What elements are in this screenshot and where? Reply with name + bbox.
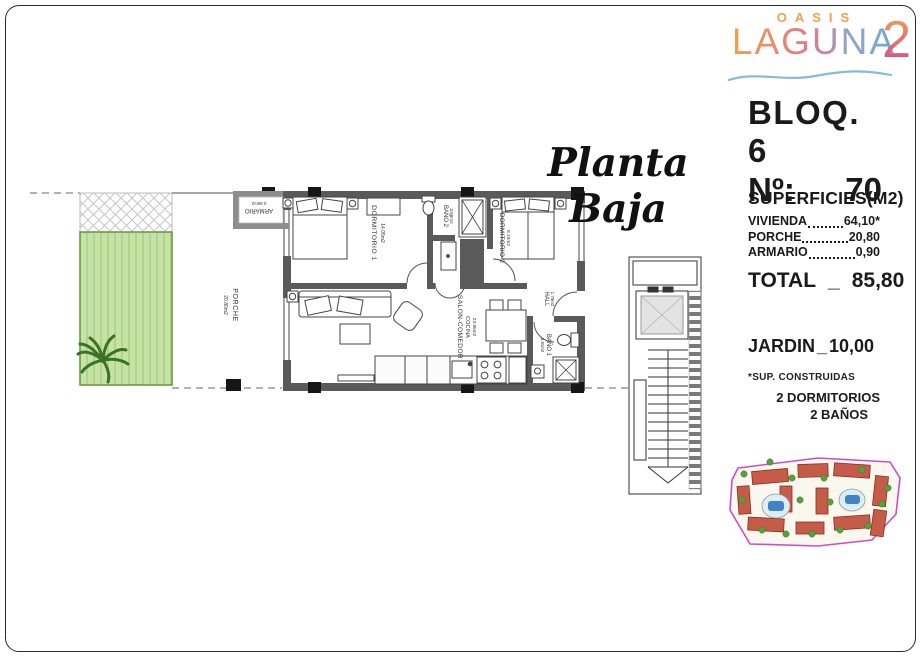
label-dormitorio2: DORMITORIO 2: [498, 213, 505, 263]
total-separator: _: [828, 269, 840, 293]
surface-value: 64,10*: [844, 214, 880, 230]
garden-area: [78, 232, 172, 385]
hatched-area: [80, 193, 172, 232]
dot-leader: [802, 241, 847, 243]
label-dormitorio1: DORMITORIO 1: [370, 205, 377, 261]
label-dormitorio1-area: 14.05m2: [379, 223, 385, 243]
logo-wave-icon: [727, 68, 893, 84]
surfaces-total: TOTAL _ 85,80: [748, 269, 880, 293]
stairwell-block: [629, 257, 701, 494]
label-dormitorio2-area: 8.15m2: [505, 230, 511, 246]
surface-label: PORCHE: [748, 230, 801, 246]
garden-line: JARDIN _ 10,00: [748, 336, 874, 357]
entrance-gap: [576, 291, 587, 317]
label-bano2-area: 3.86m2: [449, 208, 454, 224]
surface-row-vivienda: VIVIENDA 64,10*: [748, 214, 880, 230]
label-porche-area: 20.80m2: [222, 295, 228, 315]
dot-leader: [808, 226, 843, 228]
garden-separator: _: [817, 336, 827, 357]
label-porche: PORCHE: [231, 288, 238, 322]
feature-list: 2 DORMITORIOS 2 BAÑOS: [748, 389, 880, 423]
label-armario: ARMARIO: [245, 207, 273, 213]
garden-label: JARDIN: [748, 336, 815, 357]
label-bano1-area: 3.91m2: [540, 338, 545, 353]
surface-label: ARMARIO: [748, 245, 808, 261]
block-label: BLOQ. 6: [748, 94, 882, 170]
label-bano2: BAÑO 2: [442, 205, 449, 228]
kitchen-counter: [375, 356, 527, 384]
logo-number-2: 2: [882, 16, 911, 64]
feature-dormitorios: 2 DORMITORIOS: [748, 389, 880, 406]
garden-value: 10,00: [829, 336, 874, 357]
surfaces-table: SUPERFICIES(M2) VIVIENDA 64,10* PORCHE 2…: [748, 188, 880, 293]
total-label: TOTAL: [748, 269, 816, 293]
surfaces-title: SUPERFICIES(M2): [748, 188, 880, 209]
total-value: 85,80: [852, 269, 905, 293]
surface-row-armario: ARMARIO 0,90: [748, 245, 880, 261]
surface-label: VIVIENDA: [748, 214, 807, 230]
hallway-cabinet: [441, 242, 456, 270]
surface-row-porche: PORCHE 20,80: [748, 230, 880, 246]
logo-laguna-text: LAGUNA: [732, 25, 896, 59]
dot-leader: [809, 257, 855, 259]
site-plan-thumbnail: [722, 452, 908, 564]
construction-footnote: *SUP. CONSTRUIDAS: [748, 372, 855, 383]
label-salon-area: 23.95m2: [471, 318, 477, 337]
feature-banos: 2 BAÑOS: [748, 406, 880, 423]
floor-title: Planta Baja: [518, 140, 718, 232]
surface-value: 20,80: [849, 230, 880, 246]
stair-hatch-strip: [689, 291, 701, 489]
label-hall: HALL: [543, 291, 549, 307]
label-bano1: BAÑO 1: [545, 334, 552, 357]
surface-value: 0,90: [856, 245, 880, 261]
label-armario-area: 0.90m2: [251, 201, 266, 206]
logo-oasis-laguna: OASIS LAGUNA 2: [719, 10, 909, 94]
label-salon: SALON-COMEDOR: [456, 295, 463, 359]
label-hall-area: 1.79m2: [550, 292, 555, 307]
label-salon-2: COCINA: [464, 316, 470, 338]
